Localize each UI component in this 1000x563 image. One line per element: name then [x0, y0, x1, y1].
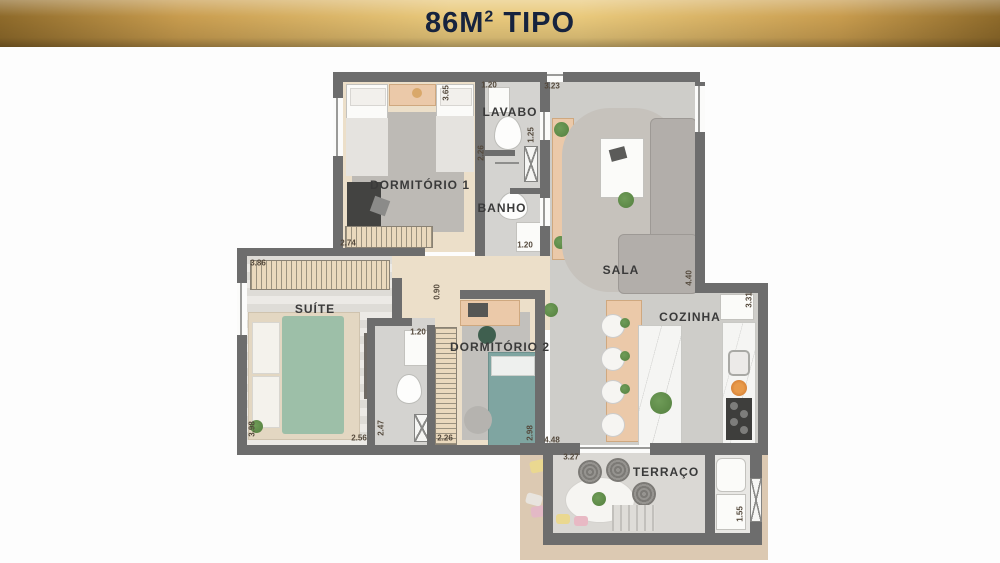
pouf-pink-2: [574, 516, 588, 526]
label-dormitorio2: DORMITÓRIO 2: [450, 340, 550, 354]
dim-dormitorio2-bottom: 4.48: [544, 436, 560, 445]
label-dormitorio1: DORMITÓRIO 1: [370, 178, 470, 192]
dormitorio1-wardrobe: [345, 226, 433, 248]
burner-4: [740, 426, 748, 434]
wall-terraco-bottom: [543, 533, 762, 545]
floor-plan: DORMITÓRIO 1 LAVABO BANHO SALA SUÍTE DOR…: [0, 0, 1000, 563]
terraco-shaft-window: [750, 478, 762, 522]
island-plant-icon: [650, 392, 672, 414]
monitor-icon: [468, 303, 488, 317]
plate-garnish-1: [620, 318, 630, 328]
wall-dormitorio2-right: [535, 290, 545, 450]
bed-1-pillow: [350, 88, 386, 106]
wall-suite-bath-right: [427, 325, 435, 445]
terraco-steps: [612, 505, 655, 531]
wall-dormitorio2-top: [460, 290, 544, 299]
wall-bottom-main: [237, 445, 533, 455]
window-suite: [237, 283, 247, 335]
wall-left-suite: [237, 248, 247, 455]
wall-shower-banho: [510, 188, 540, 194]
wall-terraco-left: [543, 443, 553, 543]
window-dormitorio1: [333, 98, 343, 156]
dim-terraco-right: 1.55: [736, 506, 745, 522]
window-sala: [695, 86, 705, 132]
plant-icon-3: [618, 192, 634, 208]
wall-lavabo-shower: [485, 150, 515, 156]
dim-suite-bath-bottom: 2.47: [377, 420, 386, 436]
wall-bathrooms-sala: [540, 82, 550, 256]
dim-suite-left: 3.98: [248, 421, 257, 437]
plate-garnish-3: [620, 384, 630, 394]
laundry-tub: [716, 458, 746, 492]
dim-suite-bottom: 2.56: [351, 434, 367, 443]
dim-dormitorio1-right: 3.65: [442, 85, 451, 101]
page: 86M2 TIPO: [0, 0, 1000, 563]
suite-duvet: [282, 316, 344, 434]
pan-icon: [731, 380, 747, 396]
entry-door: [547, 72, 563, 82]
wall-terraco-nook: [705, 455, 715, 535]
dormitorio2-pouf: [464, 406, 492, 434]
door-lavabo: [540, 112, 550, 140]
plate-garnish-2: [620, 351, 630, 361]
shaft-window: [524, 146, 538, 182]
wall-terraco-top-right: [650, 443, 762, 455]
dim-dormitorio1-wardrobe: 2.74: [340, 239, 356, 248]
wicker-chair-3: [632, 482, 656, 506]
lavabo-toilet: [494, 116, 522, 150]
label-banho: BANHO: [478, 201, 527, 215]
dim-banho-bottom: 1.20: [517, 241, 533, 250]
sliding-door-terraco: [580, 445, 650, 453]
dim-closet-bottom: 2.26: [437, 434, 453, 443]
kitchen-island: [638, 325, 682, 447]
wall-cozinha-right: [758, 283, 768, 455]
bed-2-blanket: [436, 116, 474, 172]
wall-suite-right: [392, 278, 402, 323]
label-sala: SALA: [603, 263, 640, 277]
suite-bath-toilet: [396, 374, 422, 404]
plant-icon-4: [544, 303, 558, 317]
suite-wardrobe: [250, 260, 390, 290]
bed-1-blanket: [346, 118, 388, 176]
dim-cozinha-left: 4.40: [685, 270, 694, 286]
wall-dormitorio1-bottom: [237, 248, 425, 256]
label-terraco: TERRAÇO: [633, 465, 699, 479]
suite-pillow-1: [252, 322, 280, 374]
dim-banho-left: 2.26: [477, 145, 486, 161]
wicker-chair-1: [578, 460, 602, 484]
dim-sala-top: 3.23: [544, 82, 560, 91]
wall-top: [333, 72, 700, 82]
pouf-yellow-2: [556, 514, 570, 524]
burner-3: [730, 418, 738, 426]
table-lamp-icon: [412, 88, 422, 98]
dim-suite-bath-top: 1.20: [410, 328, 426, 337]
dim-lavabo-right: 1.25: [527, 127, 536, 143]
label-suite: SUÍTE: [295, 302, 335, 316]
terraco-table-plant: [592, 492, 606, 506]
dim-suite-wardrobe: 3.86: [250, 259, 266, 268]
dining-chair-4: [601, 413, 625, 437]
dim-hall: 0.90: [433, 284, 442, 300]
dim-cozinha-right: 3.31: [745, 292, 754, 308]
kitchen-sink: [728, 350, 750, 376]
wicker-chair-2: [606, 458, 630, 482]
dim-lavabo-top: 1.20: [481, 81, 497, 90]
dim-dormitorio2-right: 2.98: [526, 425, 535, 441]
door-banho: [540, 198, 550, 226]
burner-1: [730, 402, 738, 410]
dormitorio2-pillow: [491, 356, 535, 376]
wall-suite-bath-left: [367, 318, 375, 450]
shower-head-icon: [495, 162, 519, 164]
dim-terraco-top: 3.27: [563, 453, 579, 462]
burner-2: [740, 410, 748, 418]
label-cozinha: COZINHA: [659, 310, 721, 324]
label-lavabo: LAVABO: [483, 105, 538, 119]
